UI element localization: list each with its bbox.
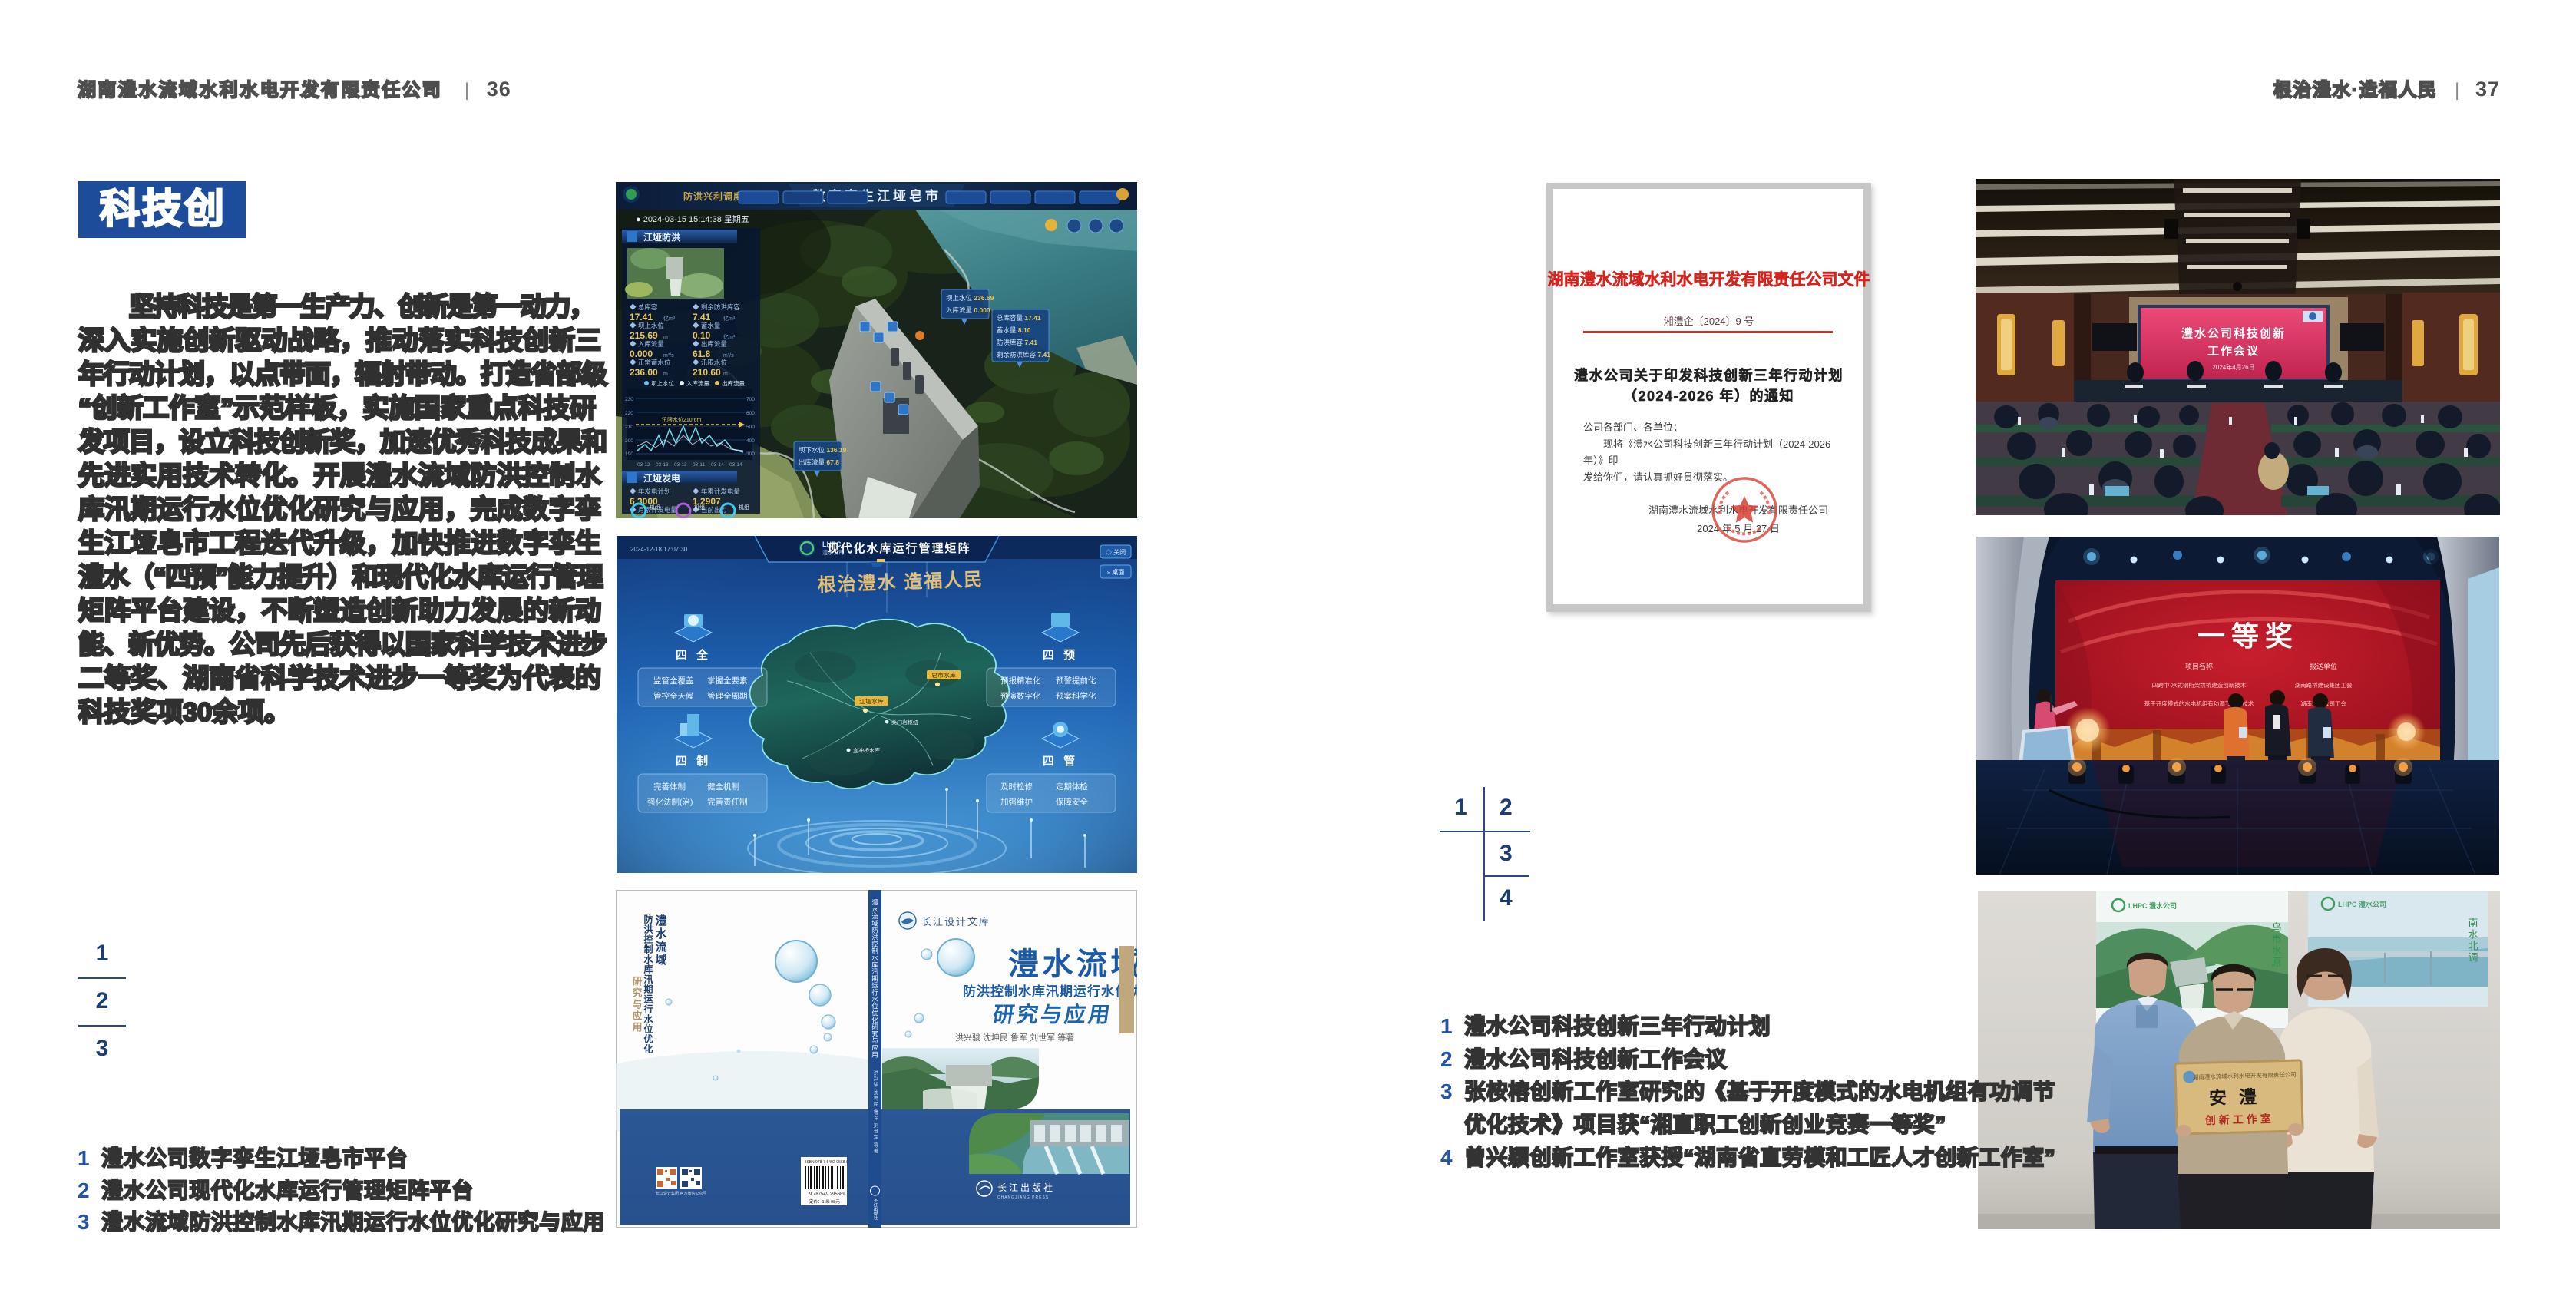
svg-text:2024年4月26日: 2024年4月26日 [2212,363,2254,371]
svg-text:及时检修: 及时检修 [1000,782,1033,792]
svg-text:m³/s: m³/s [663,353,674,359]
svg-text:◇ 关闭: ◇ 关闭 [1106,548,1126,556]
svg-text:210.60: 210.60 [693,367,721,378]
svg-text:长江设计文库: 长江设计文库 [921,916,990,927]
svg-text:61.8: 61.8 [693,349,711,359]
svg-text:江垭发电: 江垭发电 [643,472,680,484]
svg-text:长江设计集团 官方微信公众号: 长江设计集团 官方微信公众号 [656,1191,706,1196]
svg-text:长江出版社: 长江出版社 [873,1198,878,1221]
svg-text:总库容量 17.41: 总库容量 17.41 [997,314,1041,322]
svg-text:220: 220 [625,411,633,416]
svg-text:0.000: 0.000 [630,349,653,359]
svg-text:◆ 正常蓄水位: ◆ 正常蓄水位 [630,359,671,366]
svg-text:预案科学化: 预案科学化 [1056,691,1096,701]
svg-text:700: 700 [746,397,755,402]
svg-text:防洪库容 7.41: 防洪库容 7.41 [997,339,1037,346]
svg-text:健全机制: 健全机制 [707,782,739,792]
svg-text:m: m [663,372,668,377]
svg-text:定价：1 米 98元: 定价：1 米 98元 [809,1199,840,1205]
svg-text:机组: 机组 [650,504,660,511]
svg-text:关门岩枢纽: 关门岩枢纽 [891,719,918,726]
svg-text:◆ 年累计发电量: ◆ 年累计发电量 [693,488,740,495]
svg-text:◆ 汛限水位: ◆ 汛限水位 [693,359,727,366]
svg-text:03-11: 03-11 [693,462,706,468]
svg-text:四跨中·承式钢桁架拱桥建造创新技术: 四跨中·承式钢桁架拱桥建造创新技术 [2152,681,2247,689]
svg-text:亿m³: 亿m³ [723,333,736,340]
svg-text:澧水流域防洪控制水库汛期运行水位优化研究与应用: 澧水流域防洪控制水库汛期运行水位优化研究与应用 [871,898,879,1058]
svg-text:南水北调: 南水北调 [2467,917,2478,964]
svg-text:出库流量: 出库流量 [722,379,745,387]
svg-text:出库流量 67.8: 出库流量 67.8 [799,458,839,466]
svg-text:400: 400 [746,438,755,444]
svg-text:03-14: 03-14 [729,462,742,468]
svg-text:定期体检: 定期体检 [1056,782,1088,792]
svg-text:防洪兴利调度: 防洪兴利调度 [683,190,743,202]
svg-text:入库流量 0.000: 入库流量 0.000 [946,306,990,314]
svg-text:03-14: 03-14 [711,462,724,468]
svg-text:预演数字化: 预演数字化 [1000,691,1041,701]
svg-text:236.00: 236.00 [630,367,658,378]
svg-text:坝上水位: 坝上水位 [651,379,674,387]
svg-text:研究与应用: 研究与应用 [991,1002,1113,1027]
svg-text:亿m³: 亿m³ [663,315,676,322]
svg-text:现代化水库运行管理矩阵: 现代化水库运行管理矩阵 [827,541,971,555]
svg-text:皂市水库: 皂市水库 [931,672,956,679]
svg-text:保障安全: 保障安全 [1056,797,1088,807]
svg-text:◆ 蓄水量: ◆ 蓄水量 [693,322,721,329]
svg-text:汛限水位210.6m: 汛限水位210.6m [662,416,702,423]
svg-text:防洪控制水库汛期运行水位优化: 防洪控制水库汛期运行水位优化 [643,914,653,1054]
svg-text:机组: 机组 [739,504,749,511]
svg-text:安澧: 安澧 [2209,1086,2270,1108]
svg-text:7.41: 7.41 [693,312,711,322]
svg-text:防洪控制水库汛期运行水位优化: 防洪控制水库汛期运行水位优化 [963,984,1137,999]
svg-text:四 预: 四 预 [1043,649,1078,662]
svg-text:长江出版社: 长江出版社 [997,1182,1055,1193]
svg-text:研究与应用: 研究与应用 [631,976,643,1033]
svg-text:预警提前化: 预警提前化 [1056,676,1096,686]
svg-text:完善体制: 完善体制 [653,782,686,792]
svg-text:215.69: 215.69 [630,330,658,341]
svg-text:LHPC 澧水公司: LHPC 澧水公司 [2338,900,2386,908]
svg-text:17.41: 17.41 [630,312,653,322]
svg-text:洪兴骏 沈坤民 鲁军 刘世军 等著: 洪兴骏 沈坤民 鲁军 刘世军 等著 [955,1032,1074,1043]
svg-text:剩余防洪库容 7.41: 剩余防洪库容 7.41 [997,351,1050,359]
svg-text:300: 300 [746,451,755,457]
svg-text:2024-12-18 17:07:30: 2024-12-18 17:07:30 [630,546,688,553]
svg-text:◆ 年发电计划: ◆ 年发电计划 [630,488,670,495]
svg-text:m³/s: m³/s [723,353,734,359]
svg-text:◆ 坝上水位: ◆ 坝上水位 [630,322,664,329]
svg-text:0.10: 0.10 [693,330,711,341]
svg-text:230: 230 [625,397,633,402]
svg-text:四 管: 四 管 [1043,754,1078,768]
svg-text:澧水流域: 澧水流域 [654,914,667,967]
svg-text:● 2024-03-15 15:14:38 星期五: ● 2024-03-15 15:14:38 星期五 [636,214,749,224]
svg-text:项目名称: 项目名称 [2185,662,2213,670]
svg-text:乌市水原: 乌市水原 [2270,921,2282,968]
svg-text:03-13: 03-13 [656,462,669,468]
svg-text:◆ 总库容: ◆ 总库容 [630,303,658,311]
svg-text:入库流量: 入库流量 [686,379,709,387]
svg-text:完善责任制: 完善责任制 [707,797,748,807]
svg-text:澧水公司科技创新: 澧水公司科技创新 [2181,326,2286,340]
svg-text:m: m [663,335,668,340]
svg-text:210: 210 [625,425,633,430]
svg-text:亿m³: 亿m³ [723,315,736,322]
svg-text:管控全天候: 管控全天候 [653,691,694,701]
svg-text:坝上水位 236.69: 坝上水位 236.69 [946,294,994,302]
svg-text:蓄水量 8.10: 蓄水量 8.10 [997,326,1031,334]
svg-text:强化法制(治): 强化法制(治) [647,797,693,807]
svg-text:m: m [723,372,728,377]
svg-text:03-13: 03-13 [674,462,687,468]
svg-text:9 787549 295689: 9 787549 295689 [809,1192,845,1197]
svg-text:坝下水位 136.19: 坝下水位 136.19 [799,446,847,454]
svg-text:◆ 剩余防洪库容: ◆ 剩余防洪库容 [693,303,740,311]
svg-text:CHANGJIANG PRESS: CHANGJIANG PRESS [997,1195,1049,1200]
svg-text:四 制: 四 制 [676,754,711,768]
svg-text:掌握全要素: 掌握全要素 [707,676,748,686]
svg-text:◆ 入库流量: ◆ 入库流量 [630,340,664,348]
svg-text:200: 200 [625,438,633,444]
svg-text:江垭水库: 江垭水库 [859,698,884,706]
svg-text:宜冲桥水库: 宜冲桥水库 [853,747,880,754]
svg-text:管理全周期: 管理全周期 [707,691,748,701]
svg-text:机组: 机组 [694,504,705,511]
svg-text:湖南路桥建设集团工会: 湖南路桥建设集团工会 [2295,681,2353,689]
svg-text:加强维护: 加强维护 [1000,797,1033,807]
svg-text:500: 500 [746,425,755,430]
svg-text:» 桌面: » 桌面 [1107,568,1125,576]
svg-text:ISBN 978-7-5492-9568-9: ISBN 978-7-5492-9568-9 [805,1160,848,1165]
svg-text:600: 600 [746,411,755,416]
svg-text:四 全: 四 全 [676,648,711,662]
svg-text:◆ 出库流量: ◆ 出库流量 [693,340,727,348]
svg-text:190: 190 [625,451,633,457]
svg-text:监管全覆盖: 监管全覆盖 [653,676,694,686]
svg-text:澧水流域: 澧水流域 [1008,947,1137,981]
svg-text:LHPC 澧水公司: LHPC 澧水公司 [2128,901,2177,910]
svg-text:03-12: 03-12 [637,462,650,468]
svg-text:预报精准化: 预报精准化 [1000,676,1041,686]
svg-text:报送单位: 报送单位 [2310,662,2337,670]
svg-text:创新工作室: 创新工作室 [2204,1113,2274,1126]
svg-text:江垭防洪: 江垭防洪 [643,231,680,243]
svg-text:工作会议: 工作会议 [2207,344,2260,358]
svg-text:一等奖: 一等奖 [2197,620,2299,652]
